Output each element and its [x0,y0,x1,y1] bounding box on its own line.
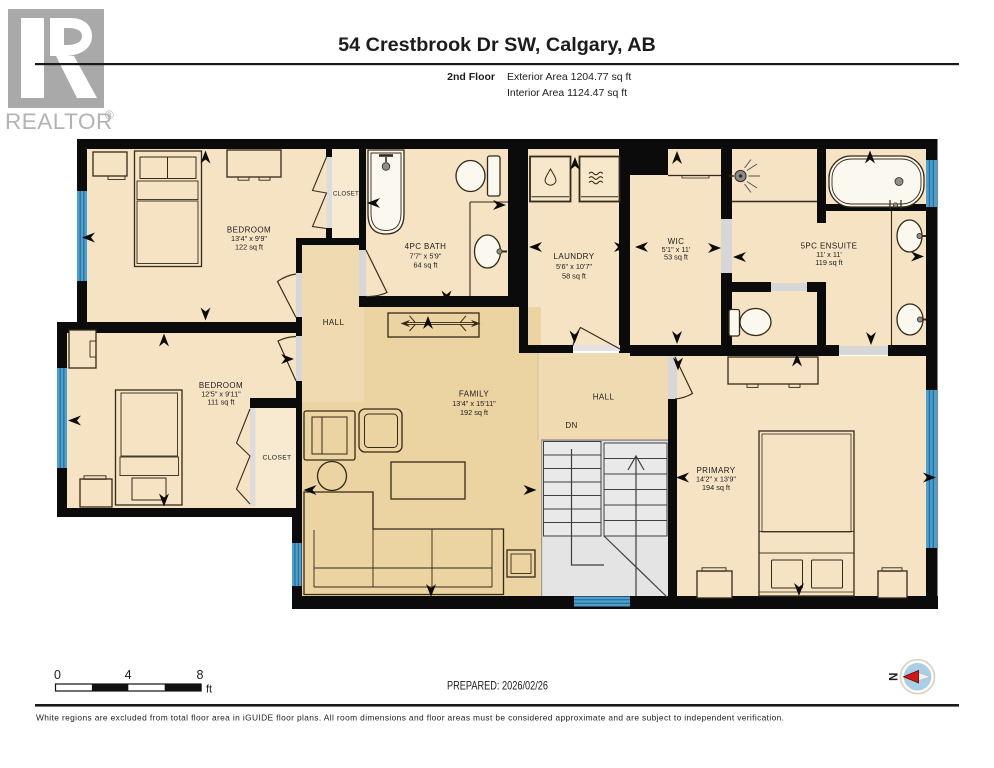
svg-text:HALL: HALL [323,318,345,327]
svg-text:2nd Floor: 2nd Floor [447,71,495,83]
svg-text:64 sq ft: 64 sq ft [414,260,438,269]
svg-text:58 sq ft: 58 sq ft [562,271,586,280]
svg-text:DN: DN [565,421,577,430]
svg-text:7'7" x 5'9": 7'7" x 5'9" [410,251,442,260]
svg-text:5'6" x 10'7": 5'6" x 10'7" [556,262,592,271]
svg-text:111 sq ft: 111 sq ft [208,397,235,406]
svg-text:122 sq ft: 122 sq ft [235,242,263,251]
svg-text:194 sq ft: 194 sq ft [702,483,730,492]
svg-text:4PC BATH: 4PC BATH [405,242,447,251]
svg-text:13'4" x 15'11": 13'4" x 15'11" [452,399,496,408]
svg-text:53 sq ft: 53 sq ft [664,253,688,262]
svg-text:N: N [889,673,901,681]
svg-text:4: 4 [125,668,132,682]
svg-text:FAMILY: FAMILY [459,389,490,398]
svg-text:Exterior Area 1204.77 sq ft: Exterior Area 1204.77 sq ft [507,71,631,83]
svg-text:HALL: HALL [593,393,615,402]
svg-text:White regions are excluded fro: White regions are excluded from total fl… [36,713,784,723]
svg-text:PREPARED: 2026/02/26: PREPARED: 2026/02/26 [447,679,548,693]
svg-text:CLOSET: CLOSET [263,454,292,461]
svg-text:0: 0 [54,668,61,682]
svg-text:®: ® [105,108,114,122]
svg-text:ft: ft [206,684,212,696]
svg-text:192 sq ft: 192 sq ft [460,408,488,417]
svg-text:LAUNDRY: LAUNDRY [554,252,595,261]
svg-text:Interior Area 1124.47 sq ft: Interior Area 1124.47 sq ft [507,87,627,99]
svg-text:54 Crestbrook Dr SW, Calgary,: 54 Crestbrook Dr SW, Calgary, AB [338,34,656,56]
svg-text:119 sq ft: 119 sq ft [815,258,842,267]
svg-text:8: 8 [197,668,204,682]
svg-text:REALTOR: REALTOR [5,109,113,134]
svg-text:CLOSET: CLOSET [333,190,359,197]
